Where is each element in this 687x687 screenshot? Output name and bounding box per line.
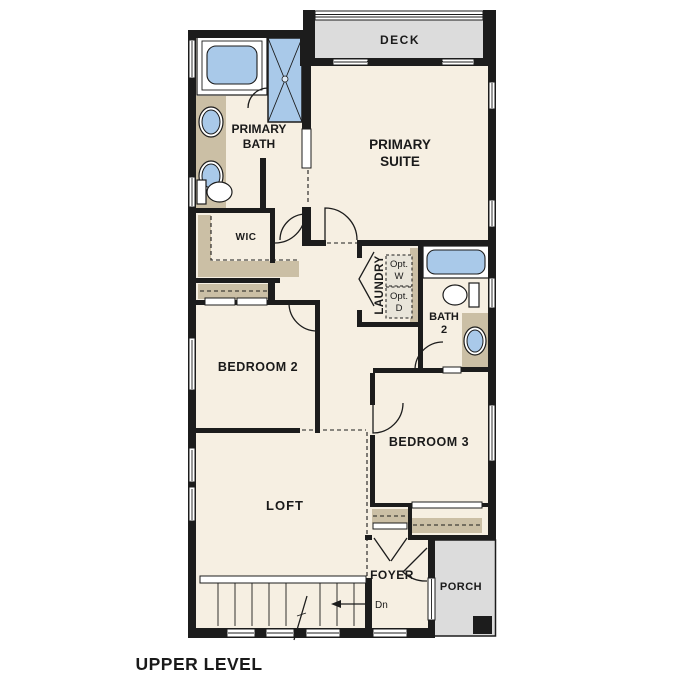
toilet-tank xyxy=(469,283,479,307)
porch-pillar xyxy=(473,616,492,634)
bedroom3-label: BEDROOM 3 xyxy=(389,435,469,449)
bedroom2-label: BEDROOM 2 xyxy=(218,360,298,374)
plan-caption: UPPER LEVEL xyxy=(135,654,262,674)
bathtub xyxy=(207,46,257,84)
stairs-down-label: Dn xyxy=(375,600,388,611)
laundry-label: LAUNDRY xyxy=(374,255,386,314)
deck-railing xyxy=(315,11,483,20)
sink xyxy=(202,110,220,134)
floor-plan-page: Dn DECK PRIMARYBATH PRIMARYSUITE WIC LAU… xyxy=(0,0,687,687)
porch-label: PORCH xyxy=(440,581,482,593)
sink xyxy=(467,330,483,352)
deck-label: DECK xyxy=(380,33,420,47)
stair-rail xyxy=(200,576,366,583)
toilet-bowl xyxy=(443,285,467,305)
toilet-bowl xyxy=(207,182,232,202)
loft-label: LOFT xyxy=(266,498,304,513)
wic-label: WIC xyxy=(236,232,257,243)
floor-plan: Dn DECK PRIMARYBATH PRIMARYSUITE WIC LAU… xyxy=(0,0,687,687)
bathtub xyxy=(427,250,485,274)
toilet-tank xyxy=(197,180,206,204)
deck-wall-right xyxy=(483,10,496,58)
shower-drain xyxy=(282,76,288,82)
foyer-label: FOYER xyxy=(370,568,414,582)
